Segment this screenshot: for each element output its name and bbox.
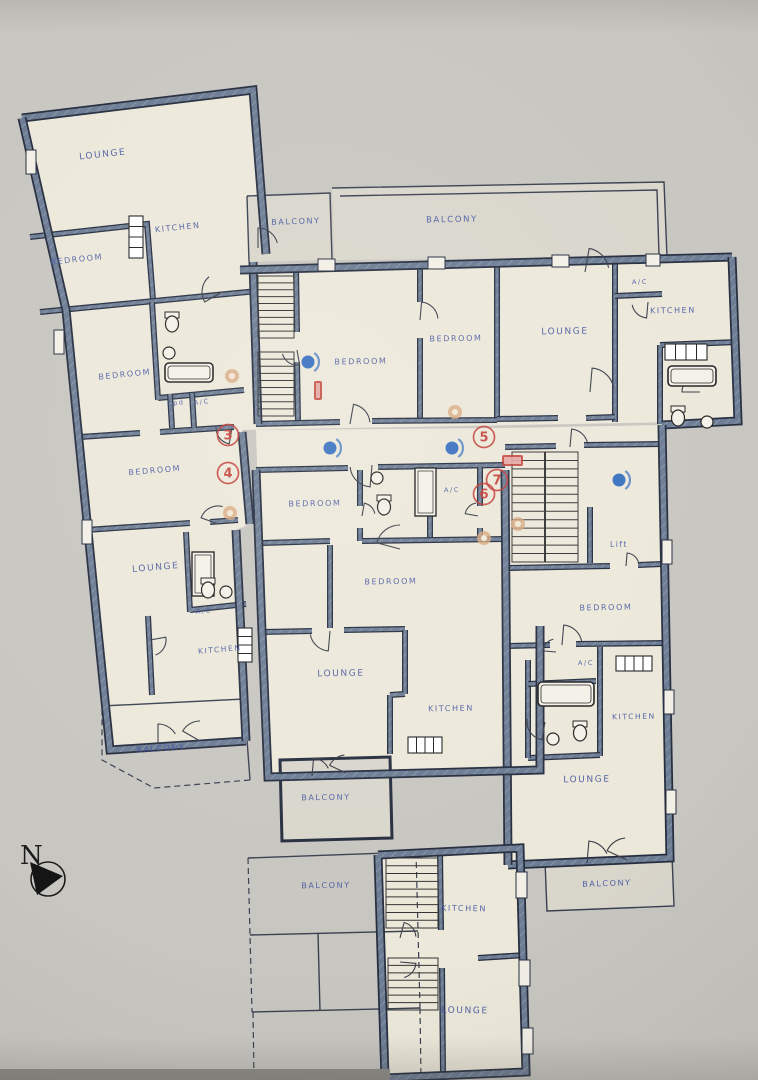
room-label: BEDROOM [288,499,341,509]
room-label: Lift [610,540,628,549]
photo-edge-shadow [0,1069,390,1080]
room-label: A/C [444,486,460,494]
sink [163,347,175,359]
dashed-outline [253,1012,254,1078]
heat-sensor-dot-center [481,535,487,541]
window [318,259,335,271]
room-label: LOUNGE [563,775,611,786]
room-label: BEDROOM [334,357,387,367]
balcony-line [318,933,320,1011]
window [646,254,660,266]
room-label: BALCONY [271,216,321,227]
compass-letter: N [20,841,43,871]
balcony-floor [332,182,667,260]
smoke-detector-dot [446,442,459,455]
room-label: BALCONY [301,881,351,891]
room-label: BALCONY [582,878,632,889]
smoke-detector-dot [324,442,337,455]
room-label: A/C [578,659,594,667]
heat-sensor-dot-center [227,510,233,516]
floor-area [262,628,540,777]
window [664,690,674,714]
window [666,790,676,814]
window [516,872,527,898]
toilet [166,316,179,332]
circled-number-value: 7 [492,474,501,489]
exterior-wall-fill [505,470,508,865]
window [26,150,36,174]
room-label: BALCONY [301,793,351,803]
north-arrow: N [20,841,65,896]
floor-plan-photo: LOUNGEKITCHENBEDROOMBALCONYBALCONYBEDROO… [0,0,758,1080]
interior-wall-fill [615,294,662,296]
room-label: A/C [193,397,210,407]
room-label: BEDROOM [364,577,417,587]
room-label: A/C [632,278,648,286]
red-rect-marker-inner [504,457,521,464]
sink [701,416,713,428]
heat-sensor-dot-center [229,373,235,379]
smoke-detector-dot [302,356,315,369]
room-label: KITCHEN [612,712,656,722]
window [552,255,569,267]
window [519,960,530,986]
room-label: LOUNGE [317,669,365,680]
sink [220,586,232,598]
room-label: KITCHEN [650,306,696,316]
floor-plan-drawing: LOUNGEKITCHENBEDROOMBALCONYBALCONYBEDROO… [0,0,758,1080]
bathtub [538,682,594,706]
room-label: LOUNGE [441,1006,489,1017]
toilet [574,725,587,741]
window [428,257,445,269]
floor-area [378,848,526,1078]
circled-number-value: 3 [223,429,232,444]
red-rect-marker-inner [316,383,320,398]
room-label: KITCHEN [441,904,487,914]
heat-sensor-dot-center [515,521,521,527]
room-label: KITCHEN [428,704,474,714]
room-label: BALCONY [426,215,478,226]
room-label: BEDROOM [429,334,482,344]
sink [371,472,383,484]
circled-number-value: 4 [223,467,232,482]
window [522,1028,533,1054]
room-label: BEDROOM [579,603,632,613]
window [54,330,64,354]
circled-number-value: 5 [479,431,488,446]
sink [547,733,559,745]
window [82,520,92,544]
window [662,540,672,564]
room-label: A/C [196,606,213,615]
room-label: LOUNGE [541,327,589,338]
toilet [378,499,391,515]
toilet [672,410,685,426]
toilet [202,582,215,598]
floor-area [256,428,505,632]
heat-sensor-dot-center [452,409,458,415]
smoke-detector-dot [613,474,626,487]
circled-number-value: 6 [479,488,488,503]
